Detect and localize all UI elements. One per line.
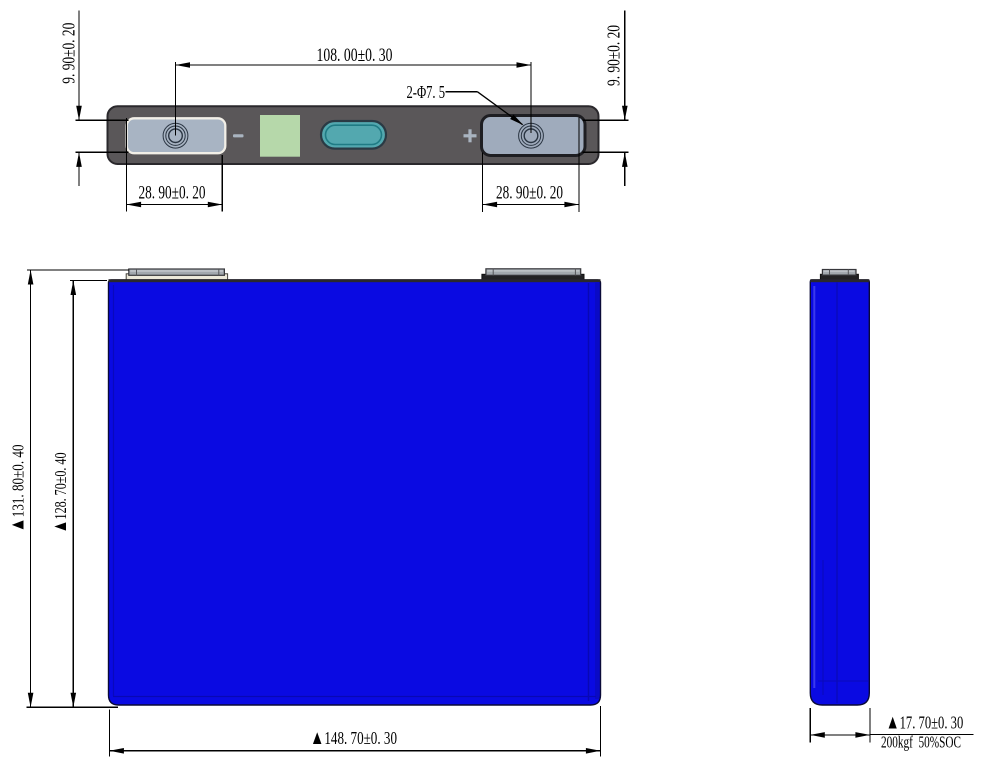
svg-text:9. 90±0. 20: 9. 90±0. 20 [603,25,623,86]
svg-text:▲131. 80±0. 40: ▲131. 80±0. 40 [7,445,29,533]
svg-text:108. 00±0. 30: 108. 00±0. 30 [317,45,393,66]
svg-text:▲17. 70±0. 30: ▲17. 70±0. 30 [886,712,964,734]
svg-text:9. 90±0. 20: 9. 90±0. 20 [59,23,79,84]
svg-text:▲148. 70±0. 30: ▲148. 70±0. 30 [310,727,397,749]
svg-text:200kgf 50%SOC: 200kgf 50%SOC [881,733,961,752]
svg-text:2-Φ7. 5: 2-Φ7. 5 [407,82,446,102]
svg-text:▲128. 70±0. 40: ▲128. 70±0. 40 [49,453,71,534]
svg-text:28. 90±0. 20: 28. 90±0. 20 [139,183,206,204]
svg-text:28. 90±0. 20: 28. 90±0. 20 [496,183,563,204]
